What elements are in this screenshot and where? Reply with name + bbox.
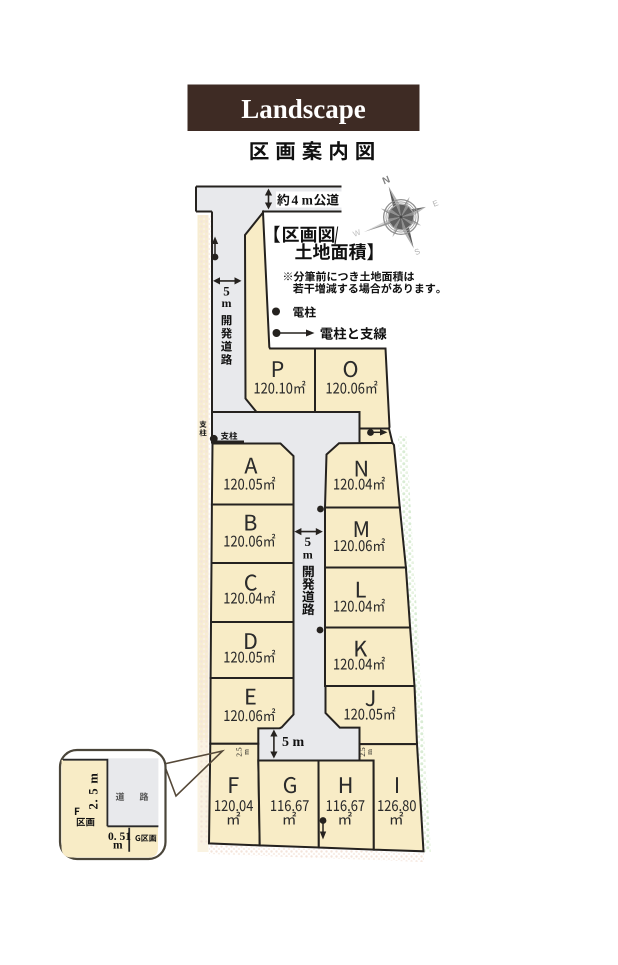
svg-text:2. 5 m: 2. 5 m <box>87 772 101 809</box>
svg-text:Landscape: Landscape <box>241 94 366 124</box>
svg-text:m: m <box>242 749 251 755</box>
svg-text:m: m <box>113 840 123 852</box>
svg-text:5 m: 5 m <box>282 735 305 750</box>
svg-text:4 m: 4 m <box>292 193 314 208</box>
svg-text:m: m <box>365 749 374 755</box>
svg-text:m: m <box>222 296 232 310</box>
svg-text:m: m <box>303 548 313 562</box>
